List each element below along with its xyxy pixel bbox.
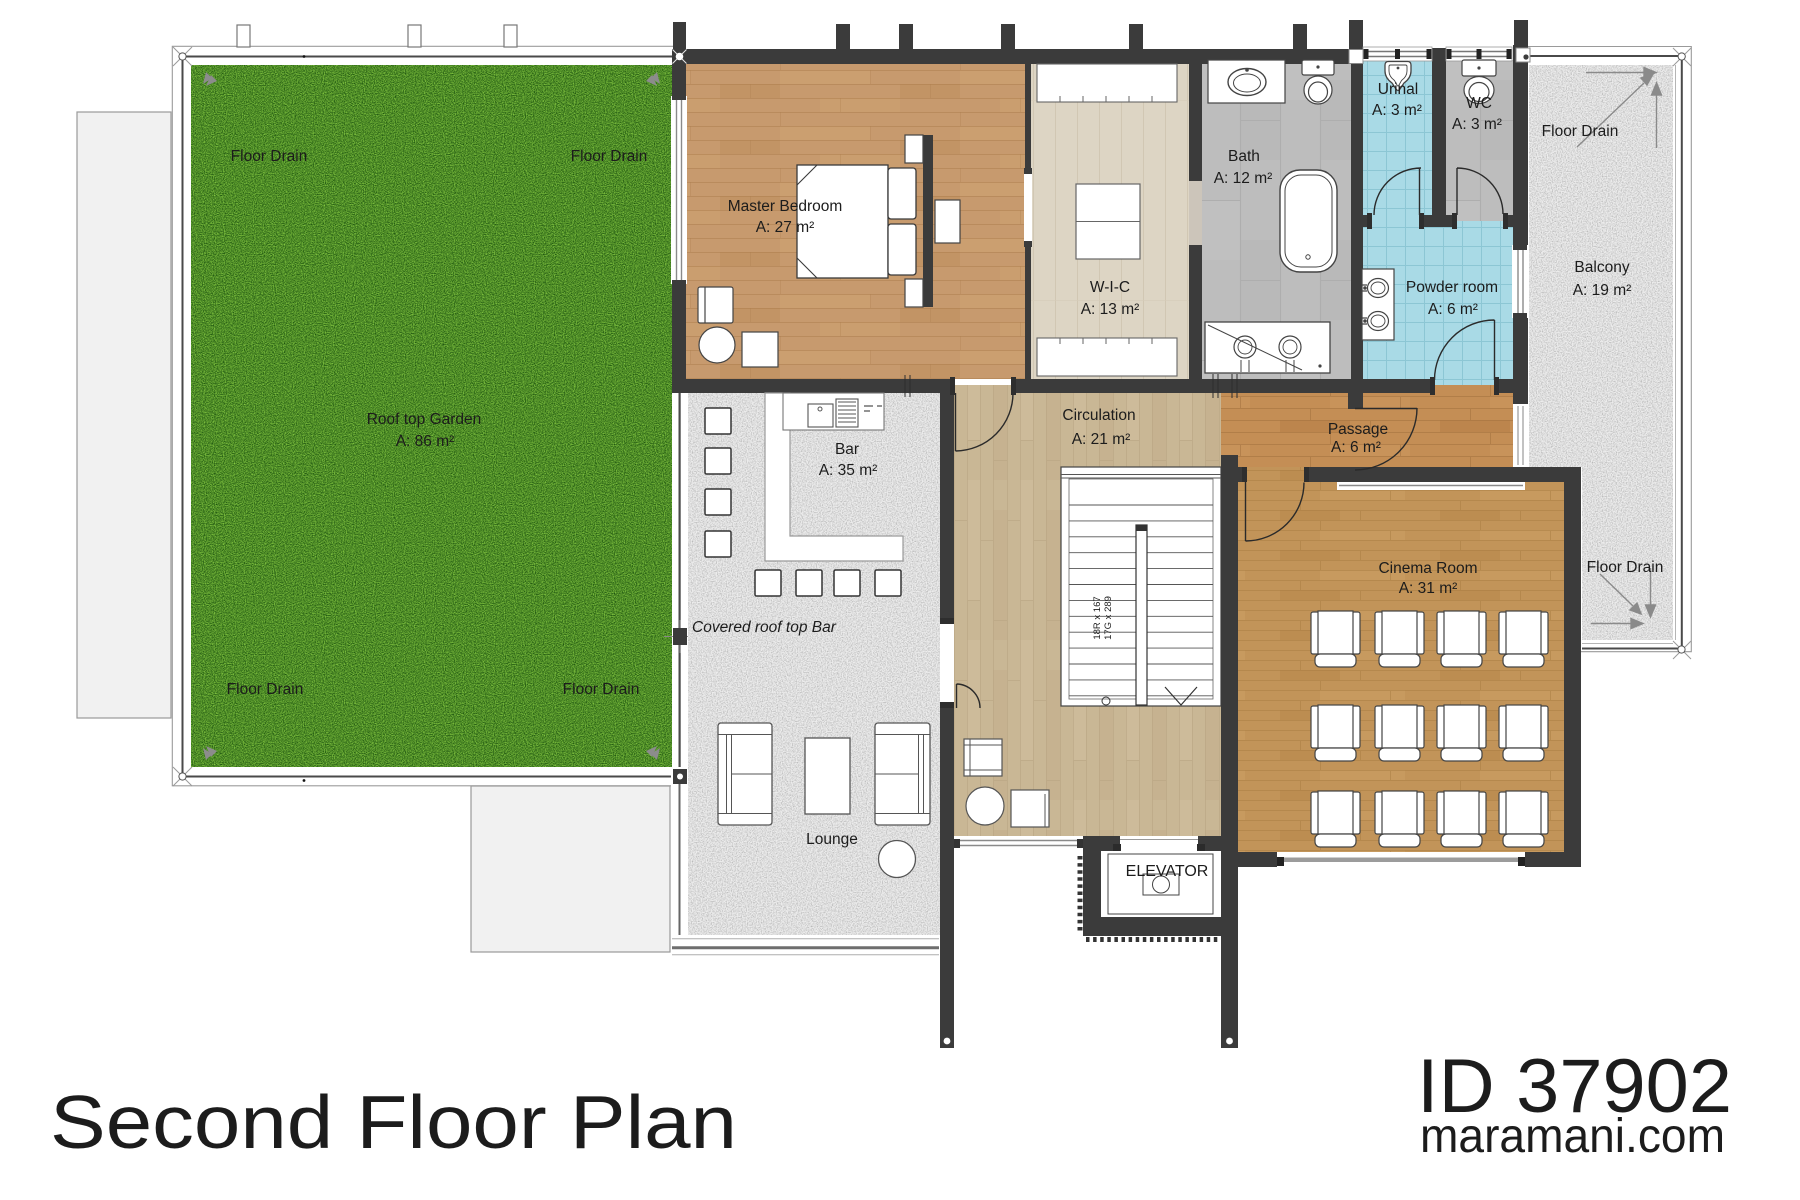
svg-text:ELEVATOR: ELEVATOR xyxy=(1126,863,1209,880)
svg-text:Covered roof top Bar: Covered roof top Bar xyxy=(692,619,837,636)
svg-text:18R x 167: 18R x 167 xyxy=(1092,596,1103,639)
svg-text:Floor Drain: Floor Drain xyxy=(571,148,648,165)
svg-text:Floor Drain: Floor Drain xyxy=(563,681,640,698)
svg-text:Lounge: Lounge xyxy=(806,831,858,848)
svg-text:A: 31 m²: A: 31 m² xyxy=(1399,580,1458,597)
svg-text:A: 12 m²: A: 12 m² xyxy=(1214,170,1273,187)
svg-text:Master Bedroom: Master Bedroom xyxy=(728,198,843,215)
svg-text:Powder room: Powder room xyxy=(1406,279,1498,296)
svg-text:Floor Drain: Floor Drain xyxy=(1542,123,1619,140)
svg-text:A: 6 m²: A: 6 m² xyxy=(1331,439,1381,456)
svg-text:Urinal: Urinal xyxy=(1378,81,1418,98)
svg-text:A: 35 m²: A: 35 m² xyxy=(819,462,878,479)
svg-text:A: 3 m²: A: 3 m² xyxy=(1372,102,1422,119)
svg-text:Passage: Passage xyxy=(1328,421,1388,438)
svg-text:Circulation: Circulation xyxy=(1062,407,1135,424)
svg-text:17G x 289: 17G x 289 xyxy=(1103,596,1114,640)
svg-text:A: 13 m²: A: 13 m² xyxy=(1081,301,1140,318)
svg-text:Floor Drain: Floor Drain xyxy=(1587,559,1664,576)
svg-text:Balcony: Balcony xyxy=(1574,259,1629,276)
svg-text:Floor Drain: Floor Drain xyxy=(231,148,308,165)
svg-text:Second Floor Plan: Second Floor Plan xyxy=(50,1080,737,1164)
svg-text:A: 3 m²: A: 3 m² xyxy=(1452,116,1502,133)
svg-text:A: 86 m²: A: 86 m² xyxy=(396,433,455,450)
svg-text:A: 27 m²: A: 27 m² xyxy=(756,219,815,236)
svg-text:WC: WC xyxy=(1466,95,1492,112)
svg-text:Bar: Bar xyxy=(835,441,859,458)
svg-text:A: 19 m²: A: 19 m² xyxy=(1573,282,1632,299)
svg-text:maramani.com: maramani.com xyxy=(1420,1110,1725,1163)
svg-text:A: 6 m²: A: 6 m² xyxy=(1428,301,1478,318)
svg-text:Cinema Room: Cinema Room xyxy=(1378,560,1477,577)
svg-text:Floor Drain: Floor Drain xyxy=(227,681,304,698)
svg-text:A: 21 m²: A: 21 m² xyxy=(1072,431,1131,448)
svg-text:Bath: Bath xyxy=(1228,148,1260,165)
svg-text:Roof top Garden: Roof top Garden xyxy=(367,411,482,428)
svg-text:W-I-C: W-I-C xyxy=(1090,279,1130,296)
